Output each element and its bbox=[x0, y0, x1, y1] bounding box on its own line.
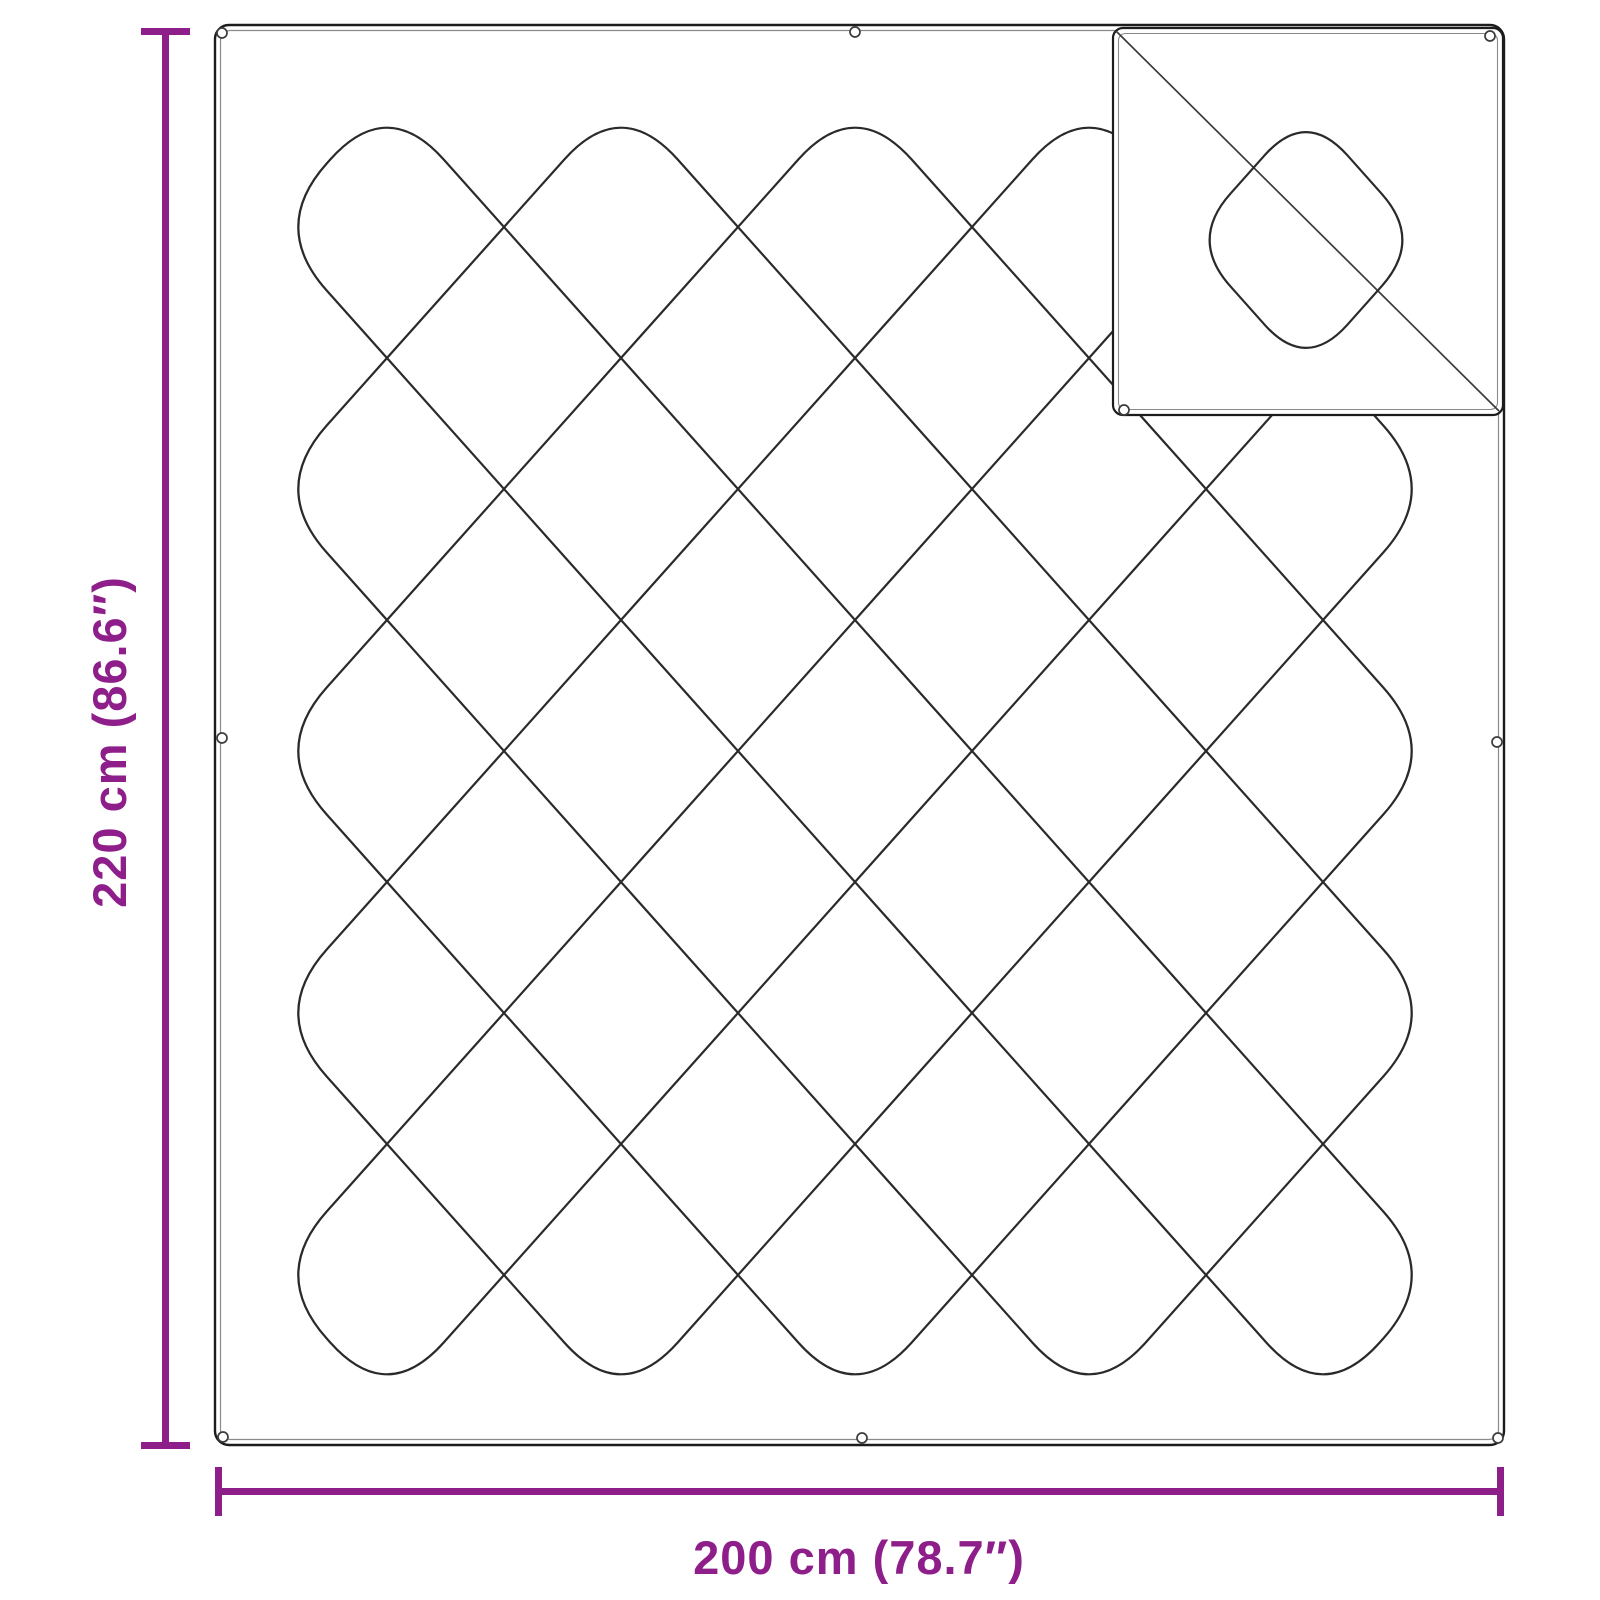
product-dimension-diagram: 220 cm (86.6″) 200 cm (78.7″) bbox=[0, 0, 1600, 1600]
corner-flap bbox=[1113, 28, 1503, 415]
width-dimension bbox=[215, 1467, 1504, 1516]
height-dimension-label: 220 cm (86.6″) bbox=[78, 542, 142, 942]
eyelet-circle-icon bbox=[1119, 405, 1129, 415]
blanket-diagram-svg bbox=[0, 0, 1600, 1600]
height-dimension-line bbox=[141, 28, 190, 1449]
eyelet-circle-icon bbox=[217, 733, 227, 743]
eyelet-circle-icon bbox=[217, 28, 227, 38]
width-dimension-line bbox=[215, 1467, 1504, 1516]
height-dimension bbox=[141, 28, 190, 1449]
eyelet-circle-icon bbox=[1485, 31, 1495, 41]
eyelet-circle-icon bbox=[1493, 1433, 1503, 1443]
eyelet-circle-icon bbox=[857, 1433, 867, 1443]
eyelet-circle-icon bbox=[1492, 737, 1502, 747]
eyelet-circle-icon bbox=[850, 27, 860, 37]
eyelet-circle-icon bbox=[218, 1432, 228, 1442]
width-dimension-label: 200 cm (78.7″) bbox=[659, 1526, 1059, 1590]
